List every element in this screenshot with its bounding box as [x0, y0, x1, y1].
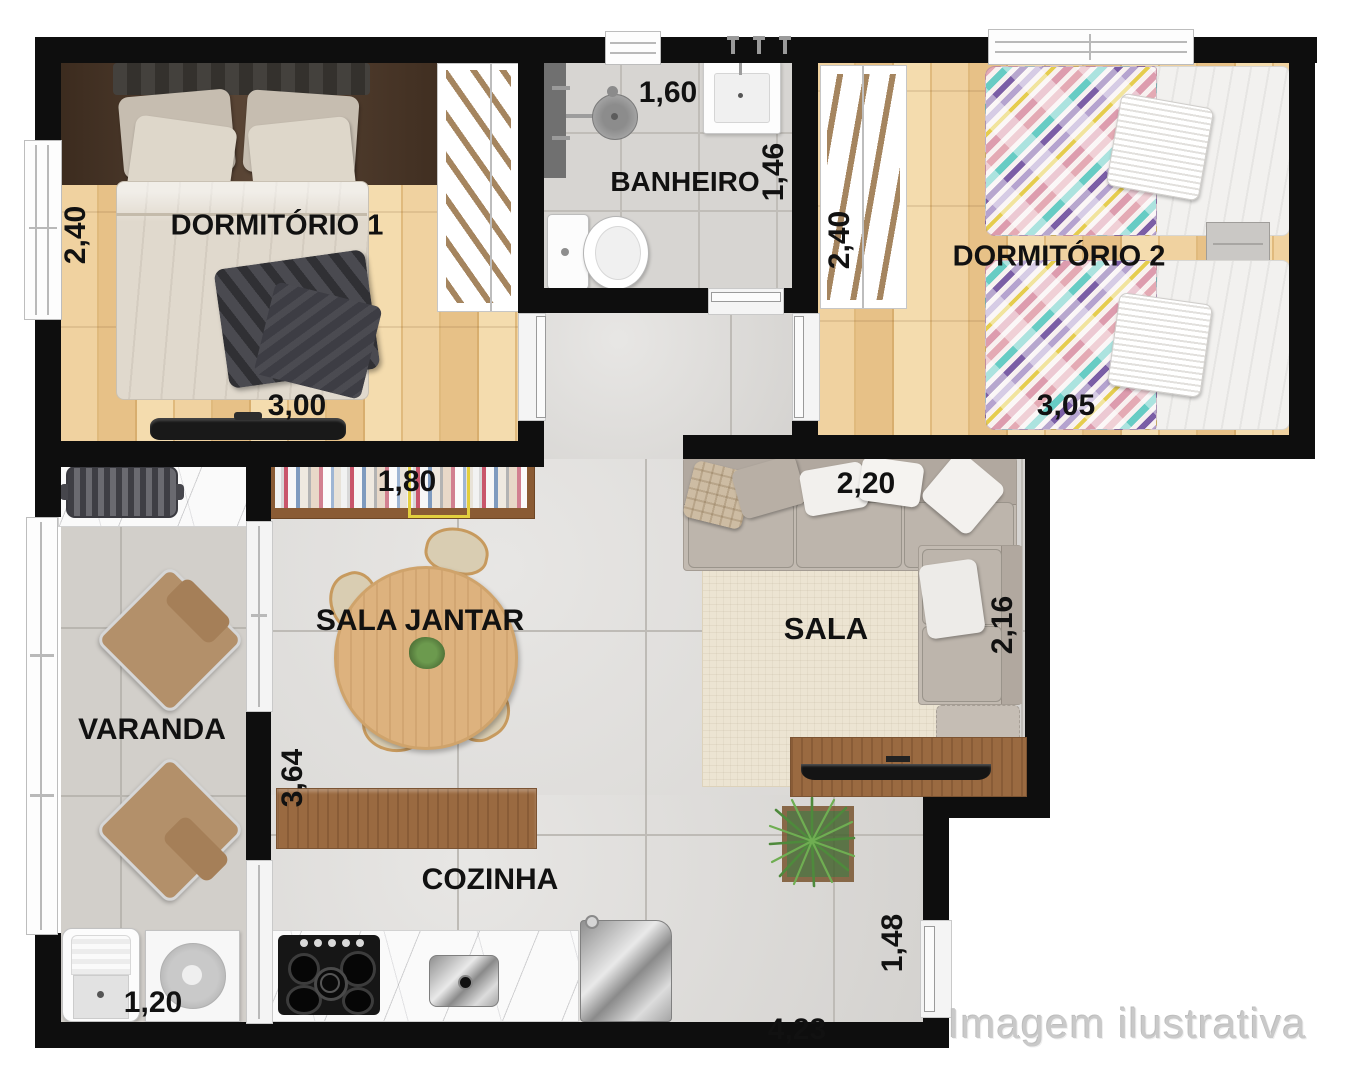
- dining-table-icon: [334, 566, 518, 750]
- stove-icon: [278, 935, 380, 1015]
- shower-wall: [544, 63, 566, 178]
- room-label-cozinha: COZINHA: [422, 863, 559, 897]
- shower-icon: [566, 94, 636, 142]
- door-icon: [246, 860, 273, 1024]
- kitchen-counter: [276, 788, 537, 849]
- dim-banheiro-depth: 1,46: [757, 143, 791, 201]
- dim-service-width: 1,20: [124, 986, 182, 1020]
- dim-dormitorio1-depth: 2,40: [59, 206, 93, 264]
- wall: [923, 795, 1050, 818]
- room-label-sala: SALA: [784, 611, 868, 647]
- dim-banheiro-width: 1,60: [639, 76, 697, 110]
- dim-dormitorio2-width: 3,05: [1037, 389, 1095, 423]
- drain-icon: [607, 86, 618, 97]
- dim-dormitorio1-width: 3,00: [268, 389, 326, 423]
- faucet-handles: [731, 36, 791, 56]
- single-bed-icon: [985, 258, 1288, 430]
- shower-handle: [552, 86, 570, 90]
- wardrobe-icon: [820, 65, 907, 309]
- tv-icon: [801, 764, 991, 780]
- wall: [1289, 37, 1315, 459]
- door-leaf: [711, 292, 781, 302]
- centerpiece-plant-icon: [409, 637, 445, 669]
- wall: [923, 818, 949, 922]
- window-icon: [605, 31, 661, 65]
- throw-pillow: [918, 558, 986, 639]
- plant-icon: [768, 796, 856, 888]
- kitchen-sink-icon: [429, 955, 499, 1007]
- window-icon: [988, 29, 1194, 65]
- tv-console: [790, 737, 1027, 797]
- dim-sala-depth: 2,16: [986, 596, 1020, 654]
- dim-cozinha-width: 4,23: [768, 1013, 826, 1047]
- room-label-varanda: VARANDA: [78, 713, 226, 747]
- armchair-icon: [108, 578, 226, 696]
- door-leaf: [924, 926, 935, 1012]
- wall: [518, 37, 544, 313]
- single-bed-icon: [985, 66, 1288, 234]
- armchair-icon: [108, 768, 226, 886]
- window-icon: [26, 517, 58, 935]
- dim-entry-width: 1,48: [876, 914, 910, 972]
- room-label-banheiro: BANHEIRO: [610, 166, 759, 198]
- bathroom-sink-icon: [703, 60, 781, 134]
- dim-jantar-depth: 3,64: [276, 749, 310, 807]
- wall: [35, 441, 532, 467]
- wardrobe-icon: [437, 63, 520, 312]
- floor-plan: DORMITÓRIO 1 2,40 3,00 BANHEIRO 1,60 1,4…: [0, 0, 1350, 1080]
- dim-shelf-width: 1,80: [378, 465, 436, 499]
- wall: [792, 37, 818, 313]
- wall: [518, 419, 544, 467]
- door-leaf: [536, 316, 546, 418]
- wall: [518, 288, 708, 313]
- wall: [1025, 459, 1050, 818]
- dim-sala-width: 2,20: [837, 467, 895, 501]
- toilet-icon: [547, 212, 649, 290]
- wall: [246, 710, 271, 860]
- shower-handle: [552, 136, 570, 140]
- room-label-dormitorio1: DORMITÓRIO 1: [171, 210, 384, 243]
- window-icon: [24, 140, 62, 320]
- fridge-icon: [580, 920, 672, 1022]
- wall: [246, 441, 271, 521]
- grill-icon: [66, 466, 178, 518]
- wall: [683, 435, 1315, 459]
- door-leaf: [794, 316, 804, 418]
- room-label-dormitorio2: DORMITÓRIO 2: [953, 241, 1166, 274]
- sliding-door-icon: [246, 521, 273, 712]
- room-label-sala-jantar: SALA JANTAR: [316, 604, 524, 638]
- dim-dormitorio2-depth: 2,40: [823, 211, 857, 269]
- wall: [35, 441, 61, 517]
- wall: [35, 933, 61, 1022]
- watermark: Imagem ilustrativa: [948, 1000, 1307, 1048]
